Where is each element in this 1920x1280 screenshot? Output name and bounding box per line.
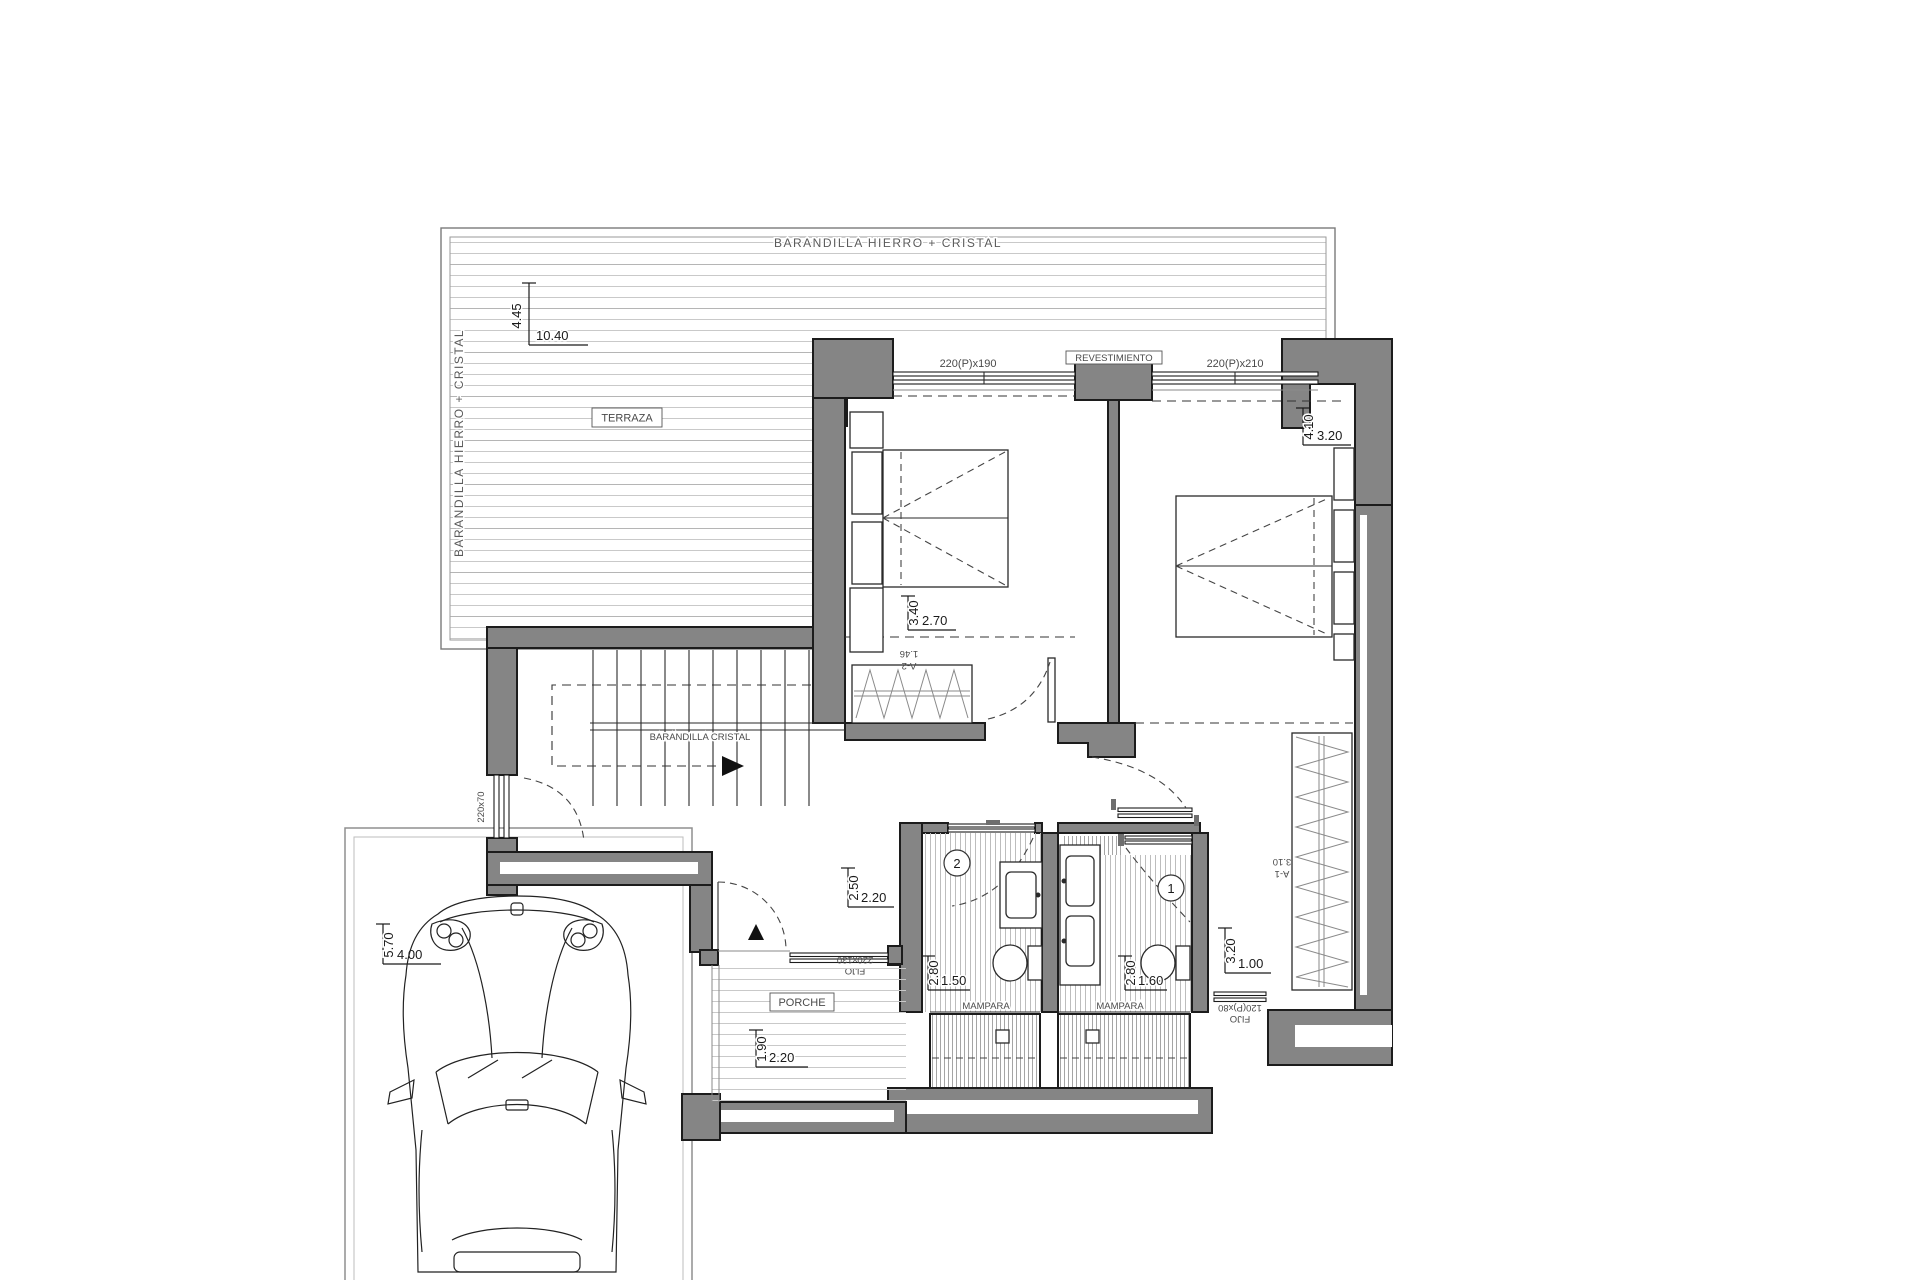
dressing-window: FIJO 120(P)x80 — [1214, 992, 1266, 1024]
svg-text:PORCHE: PORCHE — [778, 997, 825, 1009]
dressing-window-type: FIJO — [1230, 1013, 1251, 1024]
dressing-dimension: 3.20 1.00 — [1218, 928, 1271, 973]
entry-door — [718, 882, 786, 950]
terrace-railing-top-label: BARANDILLA HIERRO + CRISTAL — [774, 236, 1002, 250]
svg-text:2.20: 2.20 — [861, 890, 886, 905]
svg-text:3.20: 3.20 — [1317, 428, 1342, 443]
svg-text:3.40: 3.40 — [906, 600, 921, 625]
dressing-area: A-1 3.10 3.20 1.00 — [1218, 733, 1352, 990]
svg-text:1.50: 1.50 — [941, 973, 966, 988]
double-sink-icon — [1060, 845, 1100, 985]
svg-text:2.20: 2.20 — [769, 1050, 794, 1065]
bathroom-2: 2 MAMPARA 2.80 1.50 — [921, 820, 1042, 1088]
svg-text:2: 2 — [953, 856, 960, 871]
shower-tray — [930, 1012, 1040, 1088]
double-bed-icon — [1176, 496, 1332, 637]
bath1-screen-label: MAMPARA — [1096, 1001, 1144, 1012]
sink-icon — [1000, 862, 1042, 928]
entry-marker-icon — [748, 924, 764, 940]
wardrobe-a1-size: 3.10 — [1273, 856, 1292, 867]
svg-text:3.20: 3.20 — [1223, 938, 1238, 963]
svg-text:REVESTIMIENTO: REVESTIMIENTO — [1075, 353, 1152, 364]
svg-text:2.70: 2.70 — [922, 613, 947, 628]
svg-text:5.70: 5.70 — [381, 932, 396, 957]
svg-text:1.90: 1.90 — [754, 1036, 769, 1061]
svg-text:4.10: 4.10 — [1301, 414, 1316, 439]
svg-text:2.80: 2.80 — [1123, 960, 1138, 985]
bath2-screen-label: MAMPARA — [962, 1001, 1010, 1012]
landing-door-swing — [524, 778, 584, 841]
entry-glazing-size: 220x130 — [837, 954, 873, 965]
terrace-room-label: TERRAZA — [592, 408, 662, 427]
bedroom1-window-label: 220(P)x190 — [940, 358, 997, 370]
bathroom-1: 1 MAMPARA 2.80 1.60 — [1058, 845, 1192, 1088]
svg-text:10.40: 10.40 — [536, 328, 569, 343]
bedroom2-window-label: 220(P)x210 — [1207, 358, 1264, 370]
stairs-window-label: 220x70 — [476, 791, 487, 822]
wardrobe-a1-code: A-1 — [1275, 868, 1290, 879]
revestimiento-label: REVESTIMIENTO — [1066, 351, 1162, 364]
shower-tray — [1058, 1012, 1190, 1088]
stairs-railing-label: BARANDILLA CRISTAL — [650, 732, 751, 743]
bath2-number-badge: 2 — [944, 850, 970, 876]
dressing-window-size: 120(P)x80 — [1218, 1002, 1262, 1013]
floor-plan-drawing: BARANDILLA HIERRO + CRISTAL BARANDILLA H… — [0, 0, 1920, 1280]
svg-text:1.60: 1.60 — [1138, 973, 1163, 988]
floor-plan-page: BARANDILLA HIERRO + CRISTAL BARANDILLA H… — [0, 0, 1920, 1280]
porch-room-label: PORCHE — [770, 993, 834, 1011]
svg-text:1: 1 — [1167, 881, 1174, 896]
hall-dimension: 2.50 2.20 — [841, 868, 894, 907]
car-top-view-icon — [388, 896, 646, 1272]
toilet-icon — [993, 945, 1042, 981]
terrace-railing-left-label: BARANDILLA HIERRO + CRISTAL — [452, 329, 466, 557]
wardrobe-a2-size: 1.46 — [900, 648, 919, 659]
parking-area: 5.70 4.00 — [345, 828, 692, 1280]
wardrobe-a2: A-2 1.46 — [852, 648, 972, 723]
svg-text:2.50: 2.50 — [846, 875, 861, 900]
headlight-left-icon — [431, 920, 470, 950]
double-bed-icon — [883, 450, 1008, 587]
porch: PORCHE 1.90 2.20 — [712, 965, 906, 1102]
bath1-number-badge: 1 — [1158, 875, 1184, 901]
hall: 2.50 2.20 — [718, 868, 894, 950]
headlight-right-icon — [564, 920, 603, 950]
svg-text:1.00: 1.00 — [1238, 956, 1263, 971]
svg-text:2.80: 2.80 — [926, 960, 941, 985]
svg-text:4.45: 4.45 — [509, 303, 524, 328]
wardrobe-a2-code: A-2 — [902, 660, 917, 671]
bedroom1-door — [988, 658, 1055, 722]
stairs-direction-arrow-icon — [722, 756, 744, 776]
stairs: BARANDILLA CRISTAL — [524, 650, 845, 841]
nightstands — [850, 412, 883, 652]
svg-text:TERRAZA: TERRAZA — [601, 413, 653, 425]
wardrobe-a1: A-1 3.10 — [1273, 733, 1352, 990]
corridor-door — [1092, 757, 1199, 826]
